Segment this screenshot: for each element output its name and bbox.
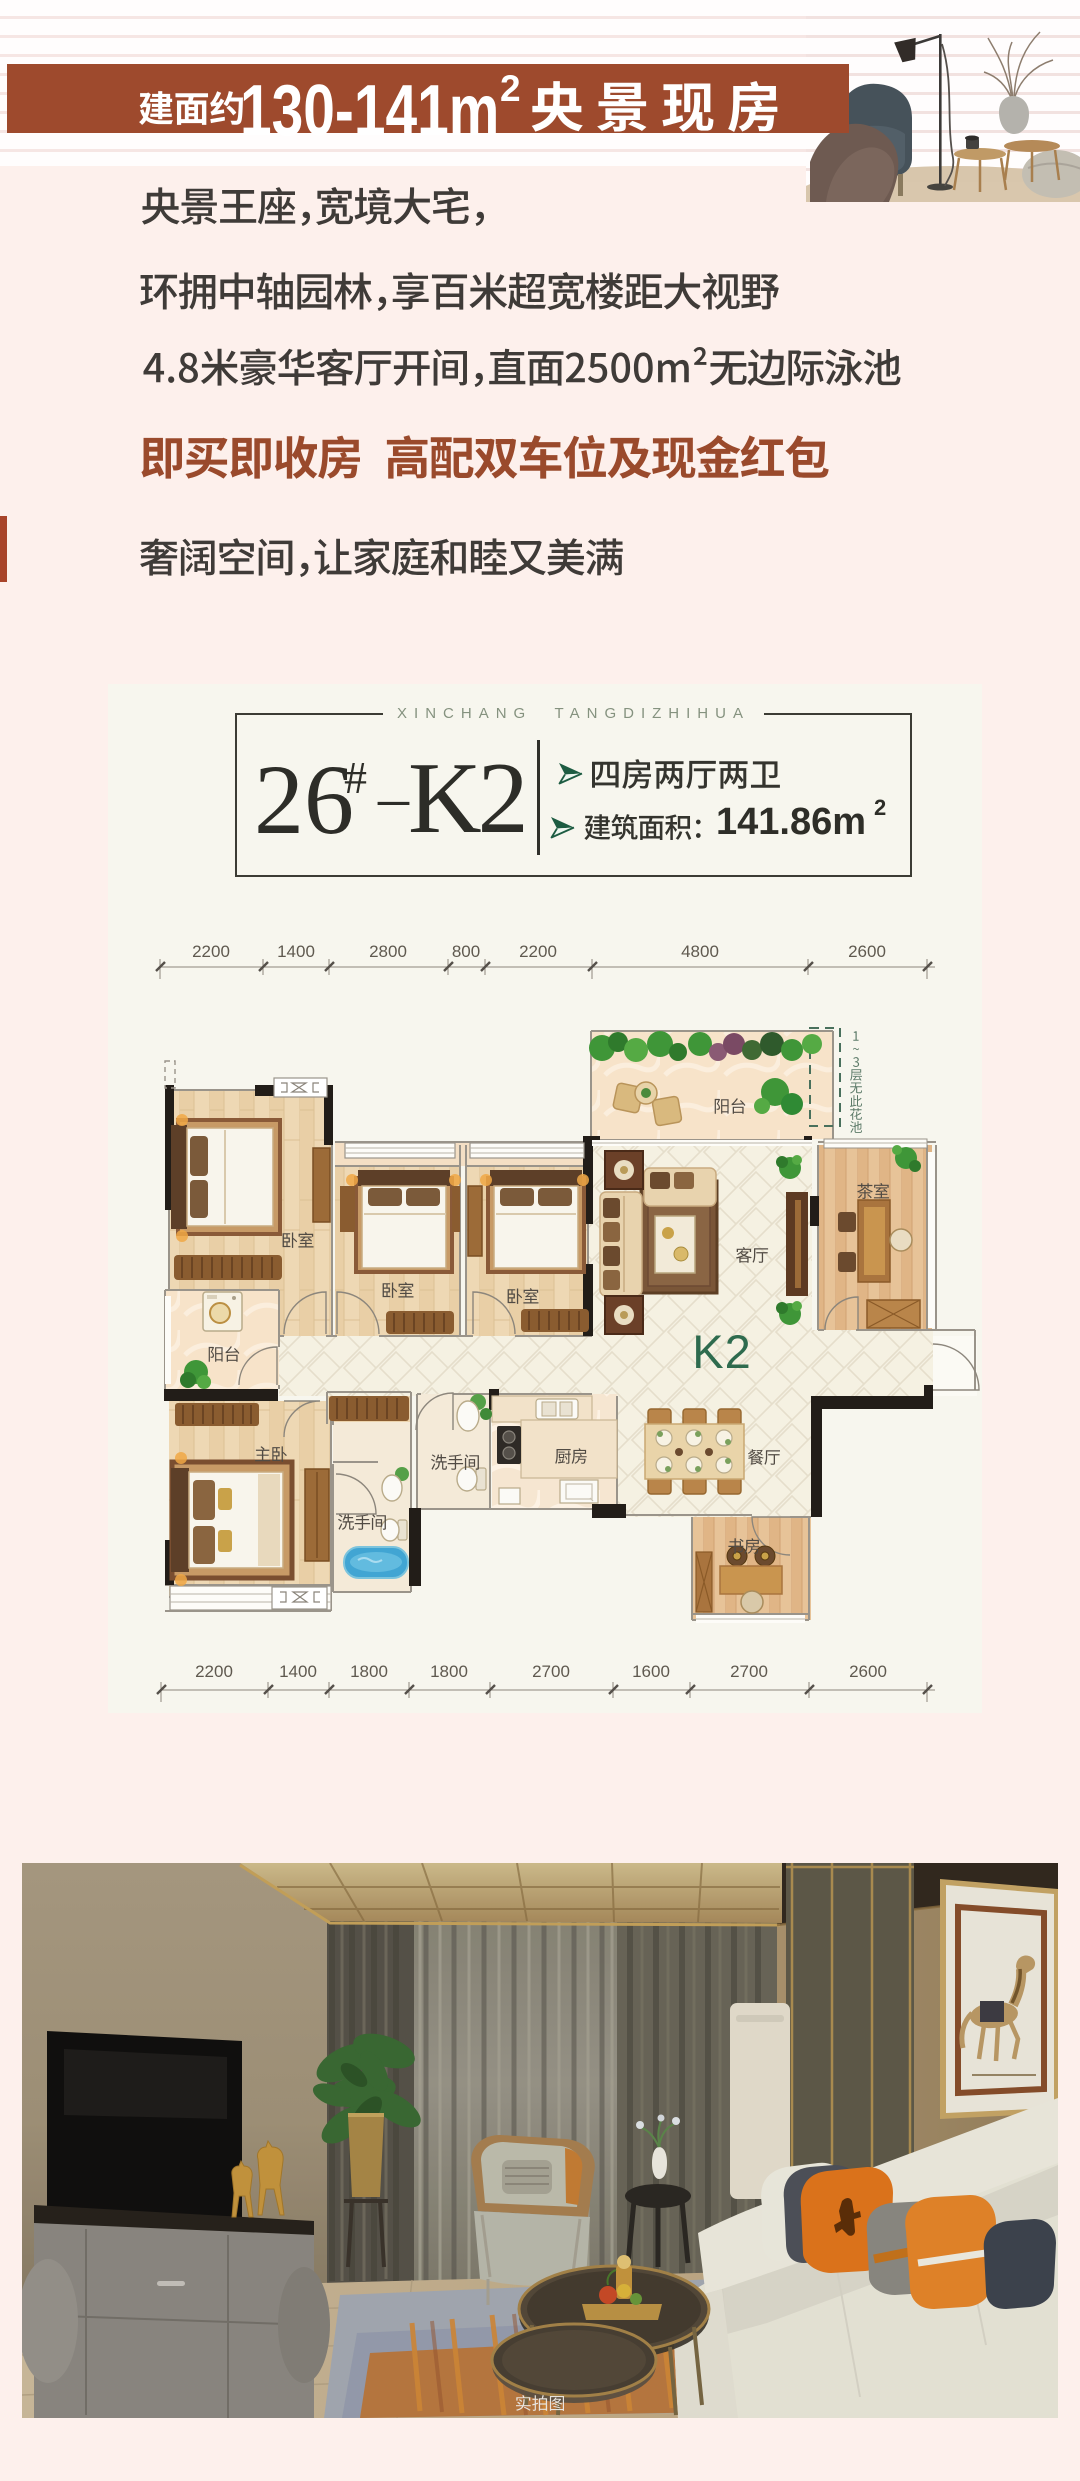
svg-text:2700: 2700 bbox=[730, 1662, 768, 1681]
svg-text:1600: 1600 bbox=[632, 1662, 670, 1681]
svg-text:2200: 2200 bbox=[195, 1662, 233, 1681]
svg-text:1800: 1800 bbox=[430, 1662, 468, 1681]
svg-text:2800: 2800 bbox=[369, 942, 407, 961]
svg-text:K2: K2 bbox=[692, 1325, 752, 1378]
svg-text:1400: 1400 bbox=[279, 1662, 317, 1681]
svg-text:1400: 1400 bbox=[277, 942, 315, 961]
svg-text:2200: 2200 bbox=[519, 942, 557, 961]
svg-text:2600: 2600 bbox=[848, 942, 886, 961]
svg-text:2200: 2200 bbox=[192, 942, 230, 961]
svg-text:2600: 2600 bbox=[849, 1662, 887, 1681]
svg-text:4800: 4800 bbox=[681, 942, 719, 961]
svg-text:2700: 2700 bbox=[532, 1662, 570, 1681]
svg-text:1800: 1800 bbox=[350, 1662, 388, 1681]
svg-text:800: 800 bbox=[452, 942, 480, 961]
